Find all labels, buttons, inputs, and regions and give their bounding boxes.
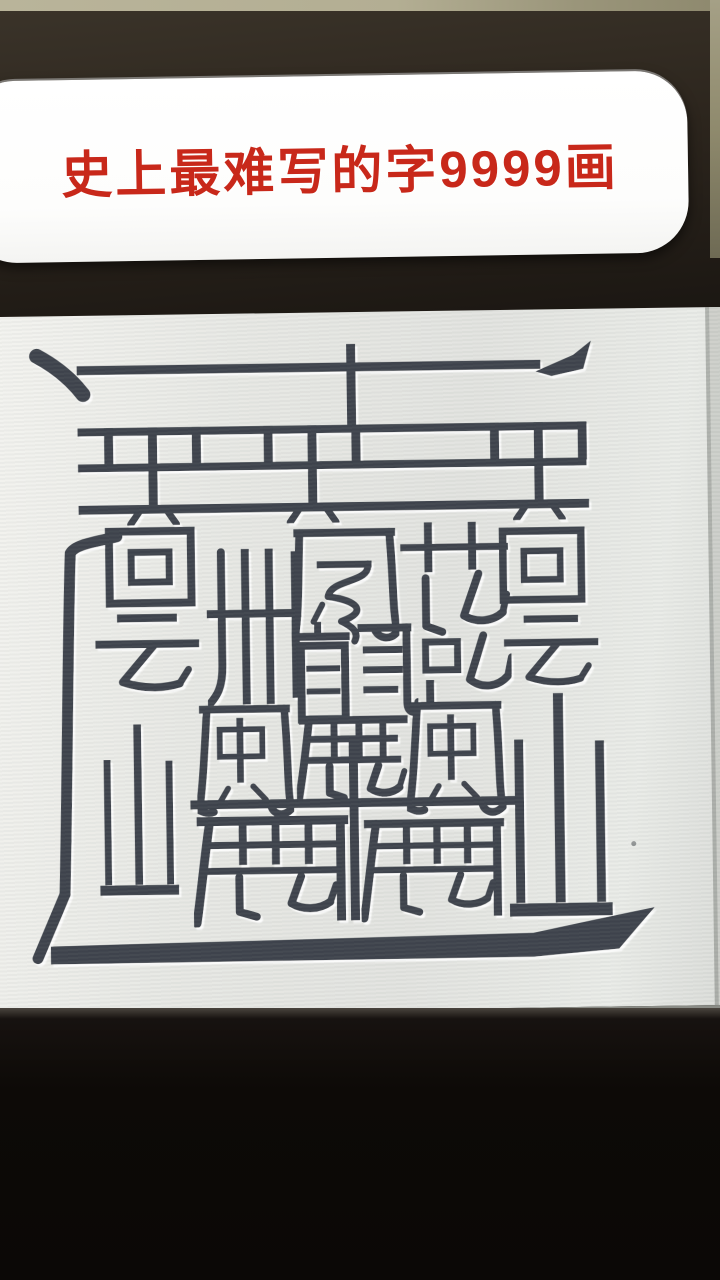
char-component-風 [198, 708, 291, 815]
tabletop-right-edge [710, 0, 720, 258]
char-component-兓 [400, 521, 512, 706]
character-components [30, 348, 656, 965]
char-component-山 [507, 692, 613, 910]
char-component-回 [503, 530, 582, 600]
char-component-鹿 [363, 822, 505, 918]
video-frame: 史上最难写的字9999画 [0, 0, 720, 1280]
char-component-鹿 [196, 820, 350, 924]
char-component-卌 [206, 548, 303, 705]
char-component-回 [109, 531, 192, 604]
char-component-山 [98, 724, 179, 891]
char-component-云 [95, 617, 200, 688]
char-component-云 [504, 618, 599, 682]
dust-speck [631, 841, 636, 846]
tabletop-strip [0, 0, 720, 11]
composite-character-drawing [0, 307, 720, 1015]
screen-photo [0, 307, 720, 1018]
caption-bubble: 史上最难写的字9999画 [0, 70, 689, 263]
caption-text: 史上最难写的字9999画 [33, 125, 620, 208]
bottom-letterbox [0, 1008, 720, 1280]
